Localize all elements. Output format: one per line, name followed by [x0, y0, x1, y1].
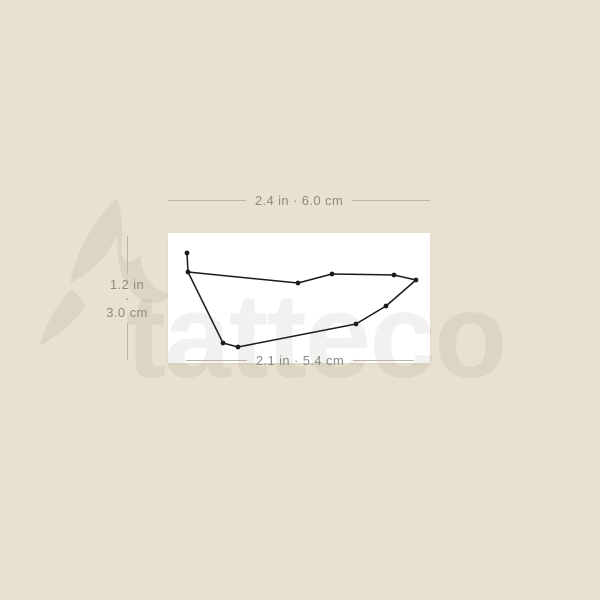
- height-measurement-separator: ·: [125, 295, 129, 302]
- measure-line-top: [127, 236, 128, 274]
- measure-line-left: [186, 360, 247, 361]
- constellation-star: [414, 278, 419, 283]
- measure-line-right: [353, 360, 414, 361]
- height-measurement-centimeters: 3.0 cm: [106, 302, 147, 323]
- constellation-star: [185, 251, 190, 256]
- constellation-star: [354, 322, 359, 327]
- measure-line-bottom: [127, 323, 128, 361]
- width-measurement: 2.4 in · 6.0 cm: [168, 192, 430, 208]
- constellation-line: [298, 274, 332, 283]
- constellation-line: [238, 324, 356, 347]
- constellation-star: [296, 281, 301, 286]
- design-width-measurement: 2.1 in · 5.4 cm: [186, 352, 414, 368]
- capricornus-constellation: [168, 233, 430, 363]
- width-measurement-label: 2.4 in · 6.0 cm: [255, 193, 343, 208]
- constellation-line: [394, 275, 416, 280]
- measure-line-right: [352, 200, 430, 201]
- constellation-star: [186, 270, 191, 275]
- constellation-star: [330, 272, 335, 277]
- constellation-line: [188, 272, 223, 343]
- constellation-star: [236, 345, 241, 350]
- design-width-measurement-label: 2.1 in · 5.4 cm: [256, 353, 344, 368]
- constellation-line: [188, 272, 298, 283]
- product-image: tatteco 2.4 in · 6.0 cm 1.2 in · 3.0 cm …: [0, 0, 600, 600]
- measure-line-left: [168, 200, 246, 201]
- constellation-line: [356, 306, 386, 324]
- height-measurement: 1.2 in · 3.0 cm: [99, 236, 155, 360]
- tattoo-card: [168, 233, 430, 363]
- constellation-star: [384, 304, 389, 309]
- constellation-star: [392, 273, 397, 278]
- constellation-line: [187, 253, 188, 272]
- constellation-line: [386, 280, 416, 306]
- constellation-star: [221, 341, 226, 346]
- constellation-line: [332, 274, 394, 275]
